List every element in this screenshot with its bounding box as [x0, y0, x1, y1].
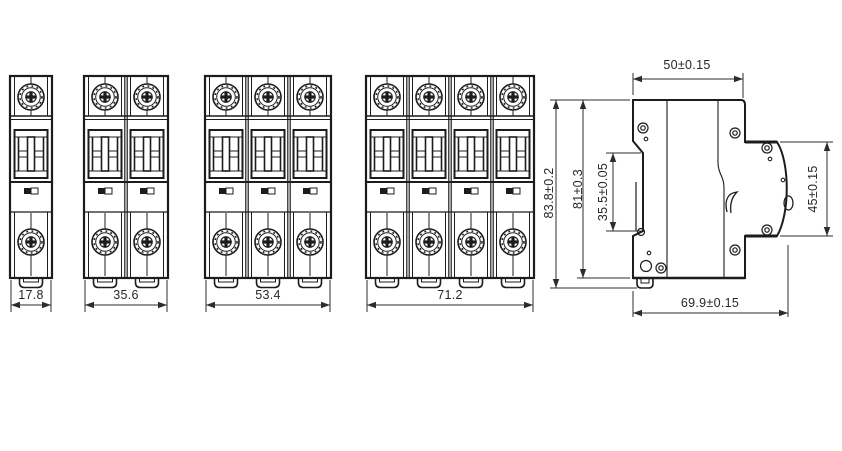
- front-view-1p: [10, 76, 52, 288]
- dim-front-height: 45±0.15: [806, 149, 820, 229]
- front-view-3p: [205, 76, 331, 288]
- dim-top-width: 50±0.15: [642, 58, 732, 72]
- side-view: [633, 100, 793, 288]
- dim-width-3p: 53.4: [238, 288, 298, 302]
- dim-body-height: 81±0.3: [571, 149, 585, 229]
- dim-width-4p: 71.2: [420, 288, 480, 302]
- dim-width-2p: 35.6: [96, 288, 156, 302]
- front-view-2p: [84, 76, 168, 288]
- drawing-canvas: 17.8 35.6 53.4 71.2 50±0.15 69.9±0.15 83…: [0, 0, 842, 451]
- dim-din-recess-height: 35.5±0.05: [596, 152, 610, 232]
- front-view-4p: [366, 76, 534, 288]
- dim-overall-height: 83.8±0.2: [542, 153, 556, 233]
- dim-width-1p: 17.8: [1, 288, 61, 302]
- dim-overall-depth: 69.9±0.15: [655, 296, 765, 310]
